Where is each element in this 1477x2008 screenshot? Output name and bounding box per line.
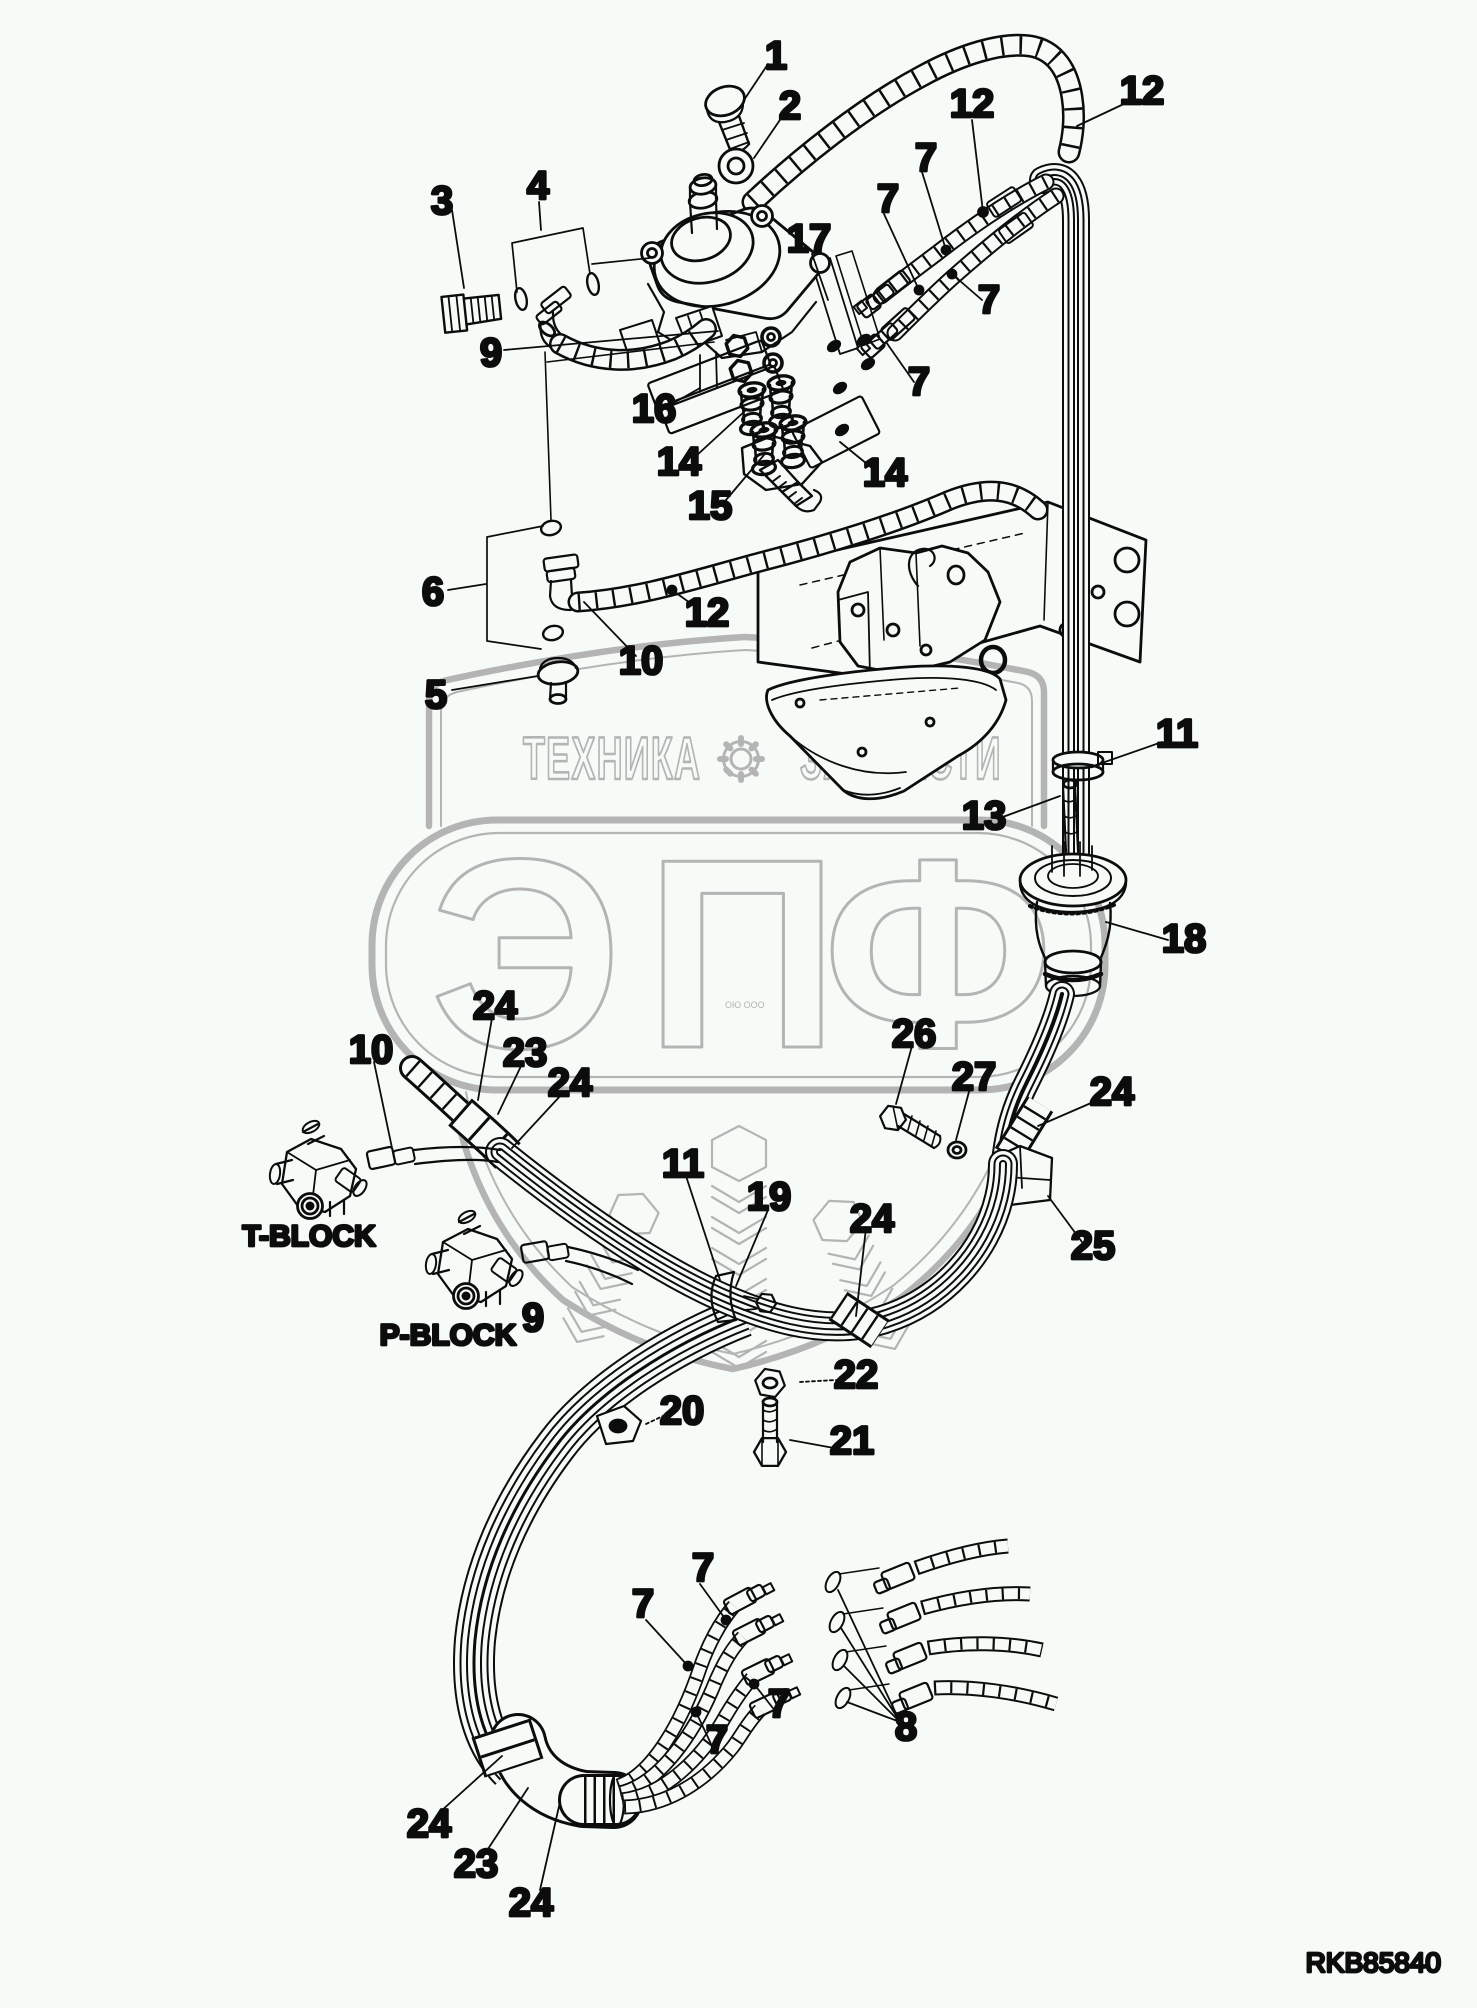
svg-text:27: 27: [952, 1055, 997, 1099]
svg-text:ТЕХНИКА: ТЕХНИКА: [523, 726, 701, 793]
svg-text:18: 18: [1162, 917, 1207, 961]
svg-text:9: 9: [480, 331, 502, 375]
svg-text:11: 11: [1156, 712, 1198, 756]
svg-text:4: 4: [527, 164, 550, 208]
svg-text:7: 7: [915, 136, 937, 180]
svg-text:5: 5: [425, 673, 447, 717]
svg-text:П: П: [645, 804, 839, 1105]
svg-text:11: 11: [662, 1142, 704, 1186]
svg-text:24: 24: [407, 1802, 452, 1846]
svg-text:26: 26: [892, 1012, 937, 1056]
svg-text:23: 23: [503, 1031, 548, 1075]
svg-text:15: 15: [688, 484, 733, 528]
svg-text:10: 10: [619, 639, 664, 683]
svg-text:12: 12: [685, 591, 730, 635]
svg-text:Ф: Ф: [823, 804, 1053, 1105]
svg-text:7: 7: [978, 278, 1000, 322]
svg-text:3: 3: [431, 179, 453, 223]
svg-text:8: 8: [895, 1705, 917, 1749]
svg-text:RKB85840: RKB85840: [1306, 1947, 1441, 1978]
svg-text:P-BLOCK: P-BLOCK: [380, 1319, 517, 1352]
svg-text:1: 1: [765, 34, 787, 78]
svg-text:14: 14: [863, 451, 908, 495]
svg-text:6: 6: [422, 570, 444, 614]
svg-text:20: 20: [660, 1389, 705, 1433]
svg-text:7: 7: [632, 1582, 654, 1626]
svg-text:2: 2: [779, 84, 801, 128]
svg-text:21: 21: [830, 1419, 875, 1463]
svg-text:23: 23: [454, 1842, 499, 1886]
svg-text:24: 24: [473, 984, 518, 1028]
svg-text:9: 9: [522, 1296, 544, 1340]
svg-text:12: 12: [1120, 69, 1165, 113]
svg-text:24: 24: [850, 1197, 895, 1241]
svg-text:T-BLOCK: T-BLOCK: [242, 1220, 376, 1253]
svg-text:25: 25: [1071, 1224, 1116, 1268]
svg-text:7: 7: [692, 1546, 714, 1590]
svg-text:12: 12: [950, 82, 995, 126]
svg-text:ОЮ ООО: ОЮ ООО: [725, 1000, 765, 1010]
svg-text:24: 24: [1090, 1070, 1135, 1114]
svg-text:22: 22: [834, 1353, 879, 1397]
svg-text:14: 14: [657, 440, 702, 484]
svg-text:13: 13: [962, 794, 1007, 838]
svg-text:7: 7: [877, 177, 899, 221]
svg-text:19: 19: [747, 1175, 792, 1219]
svg-text:10: 10: [349, 1028, 394, 1072]
svg-text:24: 24: [548, 1061, 593, 1105]
svg-text:16: 16: [632, 387, 677, 431]
svg-text:24: 24: [509, 1881, 554, 1925]
svg-text:17: 17: [787, 217, 832, 261]
svg-text:7: 7: [768, 1682, 790, 1726]
svg-text:7: 7: [908, 360, 930, 404]
svg-text:7: 7: [706, 1718, 728, 1762]
